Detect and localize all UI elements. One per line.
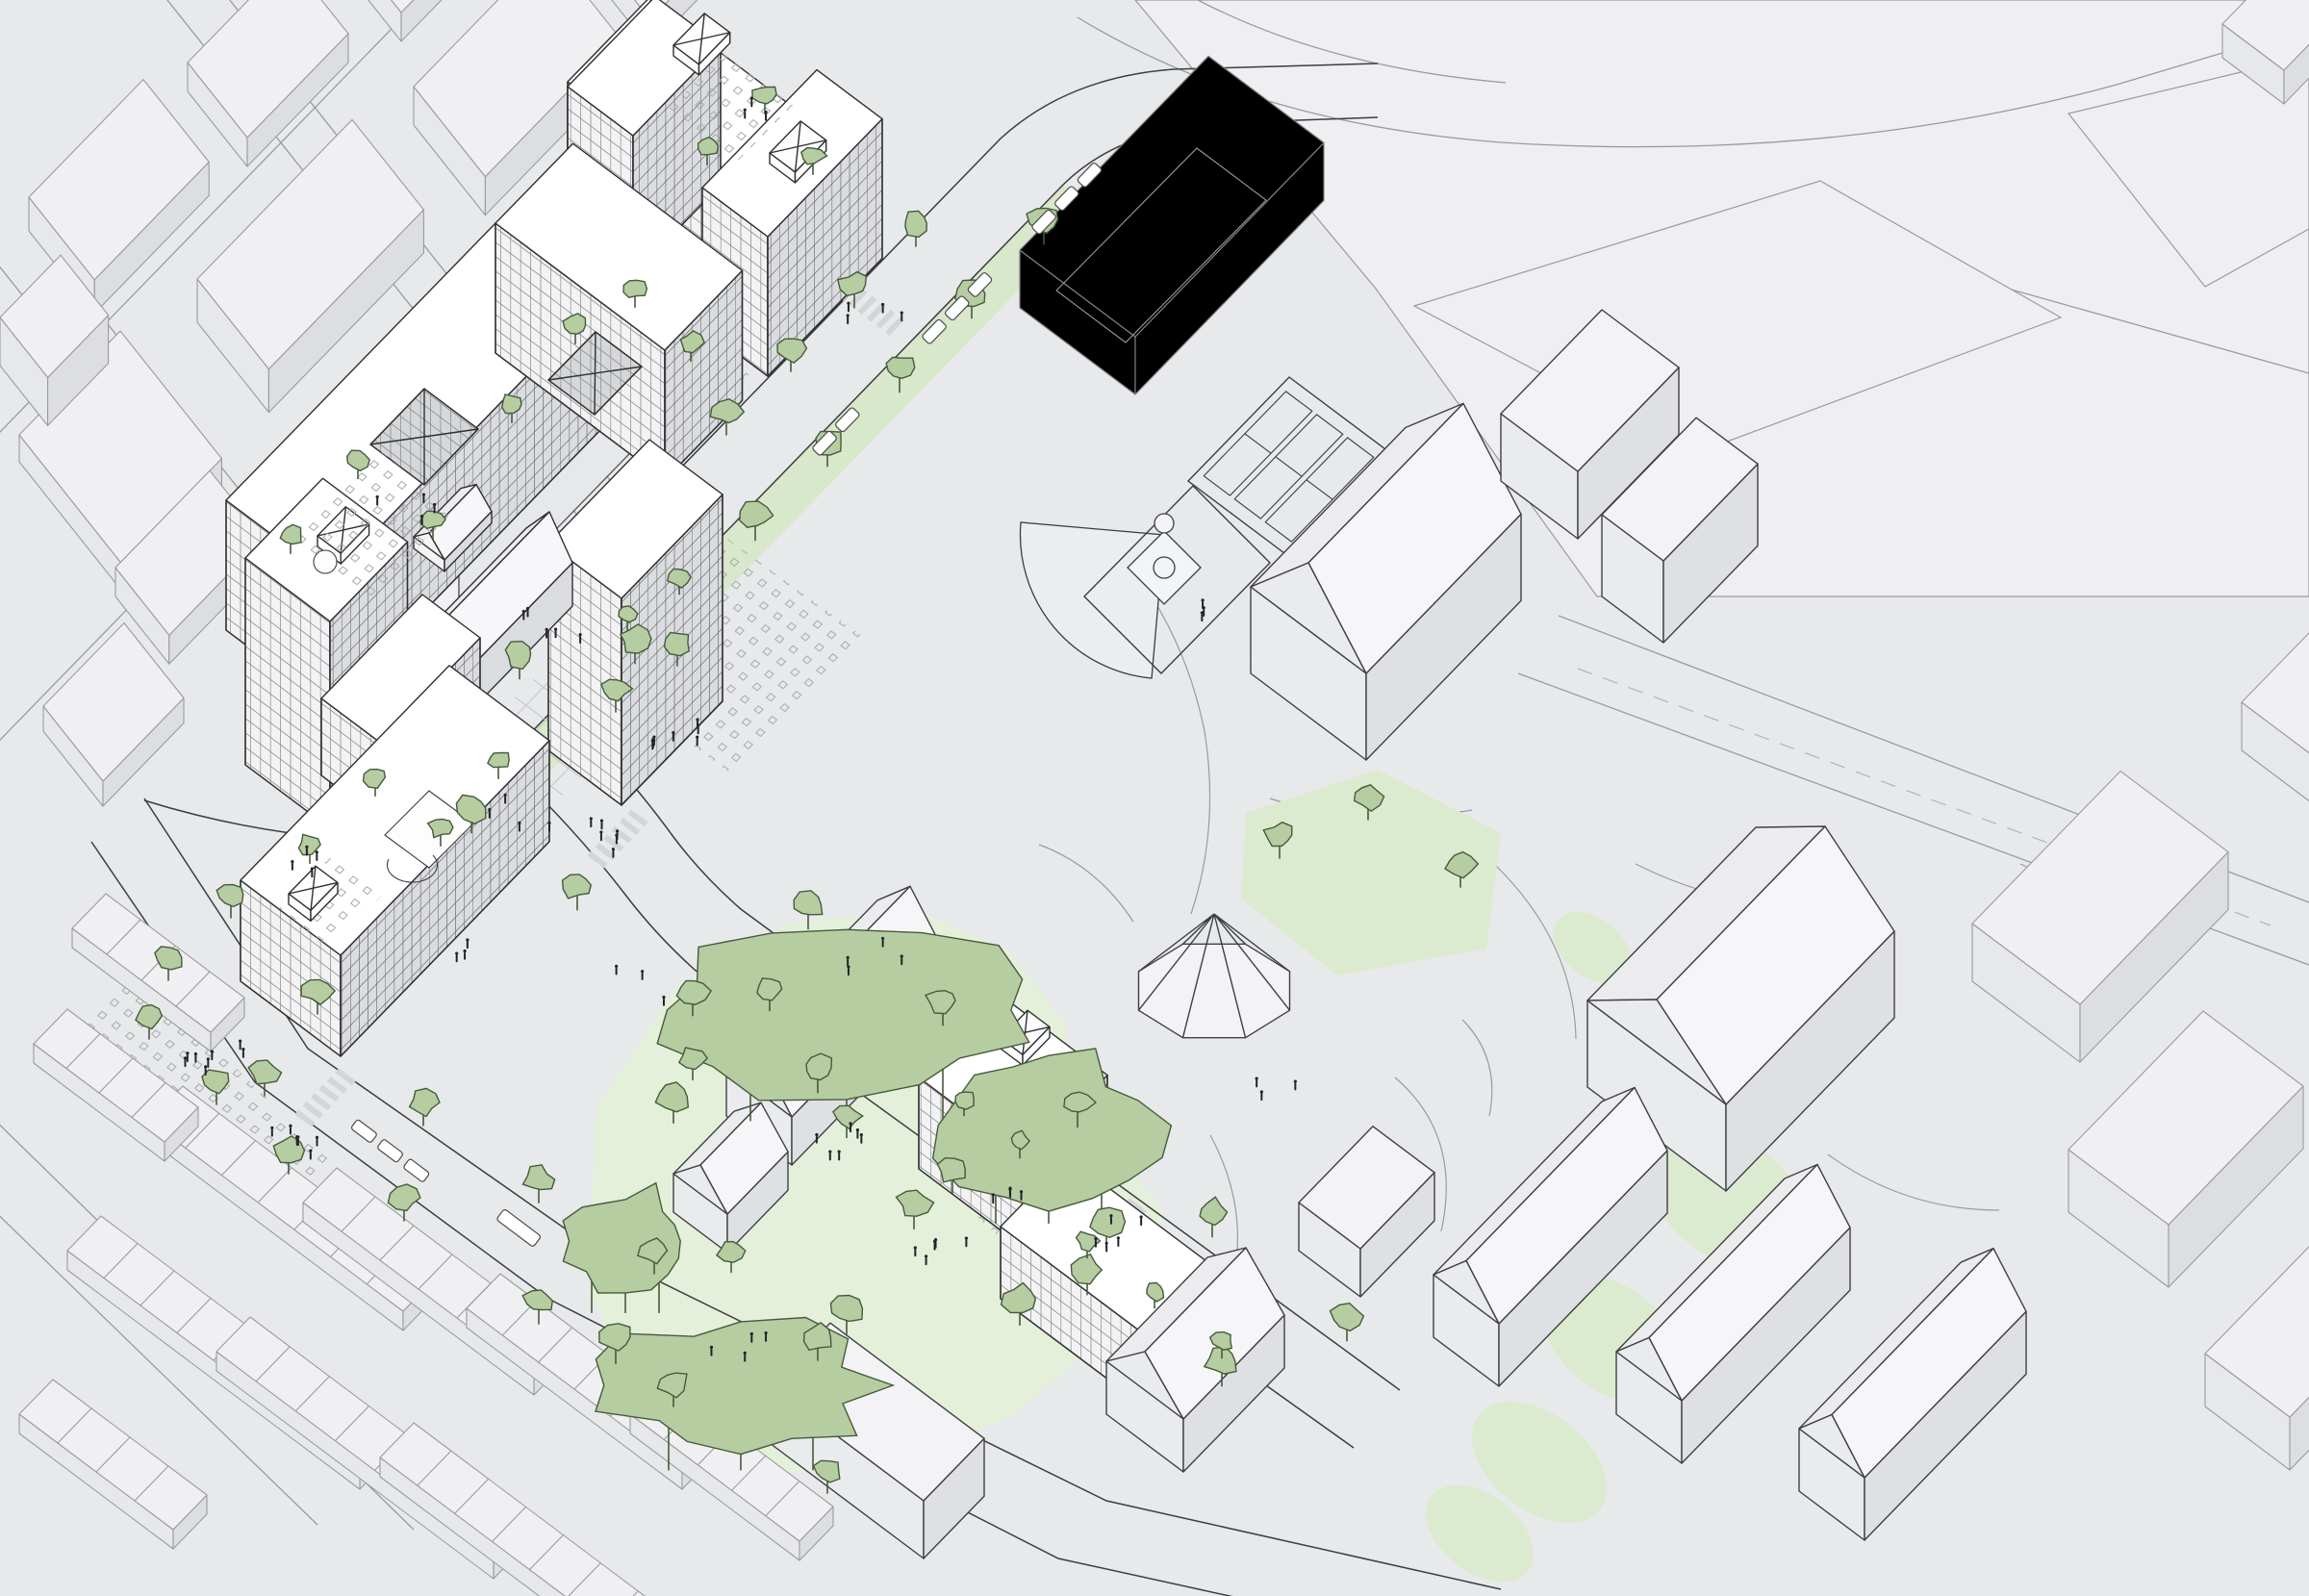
context-block	[2242, 612, 2309, 802]
campus-path	[1039, 845, 1133, 922]
axonometric-drawing: Axonometric urban masterplan illustratio…	[0, 0, 2309, 1596]
context-block	[188, 0, 348, 166]
context-block	[2205, 1229, 2309, 1470]
campus-building	[1299, 1127, 1434, 1297]
roof-terrace-circle	[314, 550, 337, 573]
bus	[496, 1208, 542, 1247]
parked-cars	[350, 1119, 429, 1182]
campus-path	[1462, 1020, 1492, 1116]
pedestrians	[1256, 1077, 1297, 1101]
masterplan-illustration: Axonometric urban masterplan illustratio…	[0, 0, 2309, 1596]
campus-path	[1828, 1154, 1999, 1210]
baseball-home-circle	[1154, 514, 1174, 533]
scene-layers	[0, 0, 2309, 1596]
row-houses	[19, 1380, 207, 1549]
campus-hall	[1251, 403, 1521, 760]
baseball-pitcher-circle	[1154, 557, 1175, 578]
context-block	[2068, 1011, 2303, 1287]
campus-octagonal-pavilion	[1138, 914, 1289, 1038]
crosswalk	[296, 1071, 354, 1125]
pedestrians	[455, 938, 469, 961]
context-block	[1972, 772, 2228, 1062]
pedestrians	[1201, 598, 1205, 621]
pedestrians	[615, 965, 666, 1005]
